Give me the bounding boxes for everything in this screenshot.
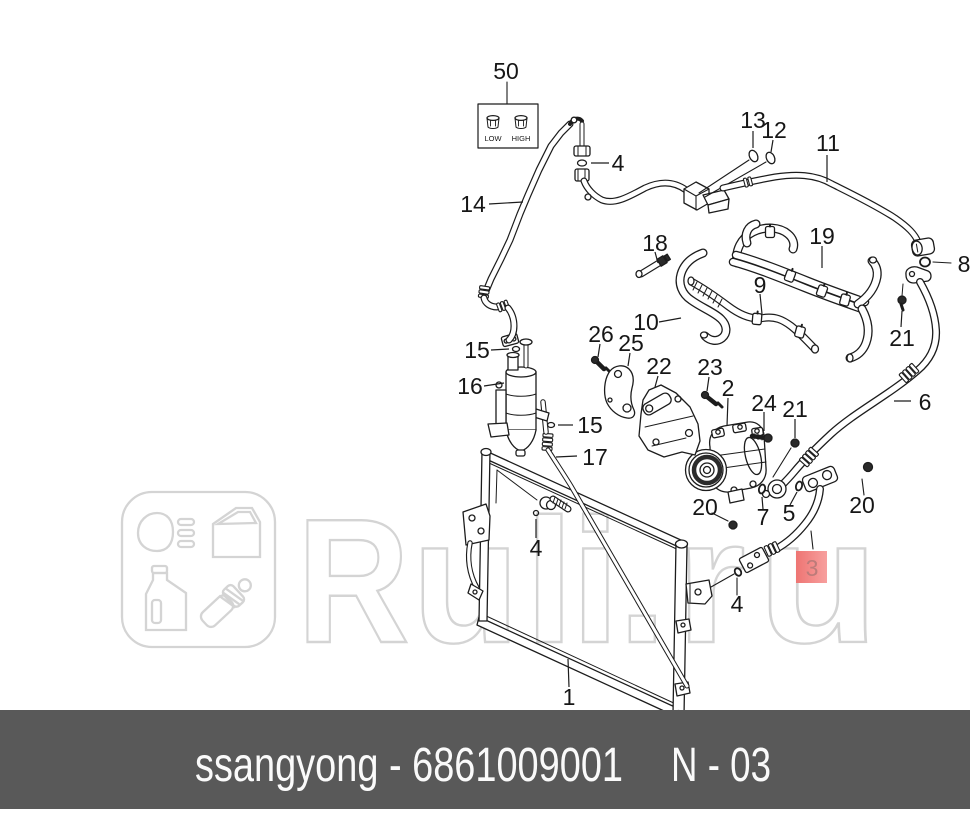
svg-text:19: 19 <box>809 223 835 249</box>
svg-text:3: 3 <box>806 555 819 581</box>
svg-text:14: 14 <box>460 191 486 217</box>
svg-text:R: R <box>297 483 409 680</box>
svg-text:2: 2 <box>722 375 735 401</box>
svg-text:15: 15 <box>464 337 490 363</box>
svg-text:17: 17 <box>582 444 608 470</box>
svg-text:20: 20 <box>849 492 875 518</box>
svg-text:4: 4 <box>731 591 744 617</box>
svg-text:22: 22 <box>646 353 672 379</box>
svg-text:9: 9 <box>754 272 767 298</box>
svg-text:N - 03: N - 03 <box>671 739 771 792</box>
svg-text:4: 4 <box>530 535 543 561</box>
svg-text:7: 7 <box>757 504 770 530</box>
svg-text:12: 12 <box>761 117 787 143</box>
svg-text:18: 18 <box>642 230 668 256</box>
svg-text:5: 5 <box>783 500 796 526</box>
svg-text:15: 15 <box>577 412 603 438</box>
svg-text:50: 50 <box>493 58 519 84</box>
svg-text:21: 21 <box>782 396 808 422</box>
svg-text:24: 24 <box>751 390 777 416</box>
svg-text:8: 8 <box>958 251 970 277</box>
svg-text:16: 16 <box>457 373 483 399</box>
svg-text:20: 20 <box>692 494 718 520</box>
svg-text:11: 11 <box>816 130 840 156</box>
svg-text:25: 25 <box>618 330 644 356</box>
svg-text:26: 26 <box>588 321 614 347</box>
svg-text:LOW: LOW <box>484 134 502 143</box>
svg-text:6: 6 <box>919 389 932 415</box>
svg-text:23: 23 <box>697 354 723 380</box>
svg-text:1: 1 <box>563 684 576 710</box>
svg-text:ssangyong - 6861009001: ssangyong - 6861009001 <box>195 739 623 792</box>
svg-text:4: 4 <box>612 150 625 176</box>
svg-text:HIGH: HIGH <box>512 134 531 143</box>
svg-text:21: 21 <box>889 325 915 351</box>
